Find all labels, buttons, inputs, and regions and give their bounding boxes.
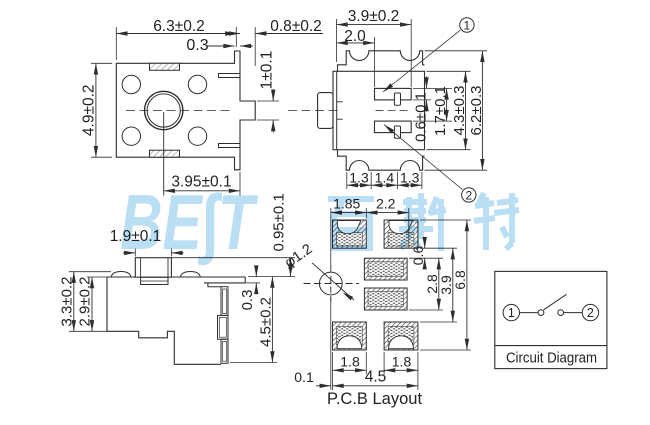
svg-text:2.2: 2.2 [376, 196, 396, 212]
svg-text:0.3: 0.3 [186, 37, 208, 54]
svg-text:Circuit Diagram: Circuit Diagram [506, 350, 597, 367]
svg-text:0.8±0.2: 0.8±0.2 [270, 18, 322, 35]
svg-text:2: 2 [465, 188, 472, 202]
svg-text:0.6±0.1: 0.6±0.1 [412, 92, 429, 142]
svg-text:4.3±0.3: 4.3±0.3 [451, 86, 468, 136]
svg-text:1.8: 1.8 [340, 354, 360, 370]
svg-text:1.8: 1.8 [392, 354, 412, 370]
svg-text:1: 1 [464, 19, 471, 33]
svg-text:4.9±0.2: 4.9±0.2 [81, 84, 98, 136]
svg-text:BE∫T: BE∫T [120, 178, 259, 266]
svg-text:1.4: 1.4 [375, 170, 395, 186]
svg-text:P.C.B Layout: P.C.B Layout [327, 390, 423, 408]
svg-text:3.3±0.2: 3.3±0.2 [58, 277, 75, 327]
svg-text:4.5±0.2: 4.5±0.2 [258, 297, 275, 347]
svg-text:3.9±0.2: 3.9±0.2 [348, 8, 400, 25]
svg-text:4.5: 4.5 [365, 369, 387, 386]
svg-text:1.3: 1.3 [400, 170, 420, 186]
svg-text:1.7±0.1: 1.7±0.1 [432, 86, 449, 136]
svg-text:2.0: 2.0 [344, 28, 366, 45]
svg-text:0.3: 0.3 [239, 290, 256, 311]
svg-text:2: 2 [587, 306, 594, 320]
svg-text:6.8: 6.8 [452, 270, 468, 290]
svg-text:1.3: 1.3 [349, 170, 369, 186]
svg-text:6.2±0.3: 6.2±0.3 [468, 86, 485, 136]
svg-text:2.9±0.2: 2.9±0.2 [77, 277, 94, 327]
svg-text:0.95±0.1: 0.95±0.1 [270, 193, 287, 251]
svg-text:0.1: 0.1 [294, 369, 314, 385]
svg-text:6.3±0.2: 6.3±0.2 [153, 18, 205, 35]
svg-text:1±0.1: 1±0.1 [259, 51, 276, 90]
svg-text:1: 1 [508, 306, 515, 320]
